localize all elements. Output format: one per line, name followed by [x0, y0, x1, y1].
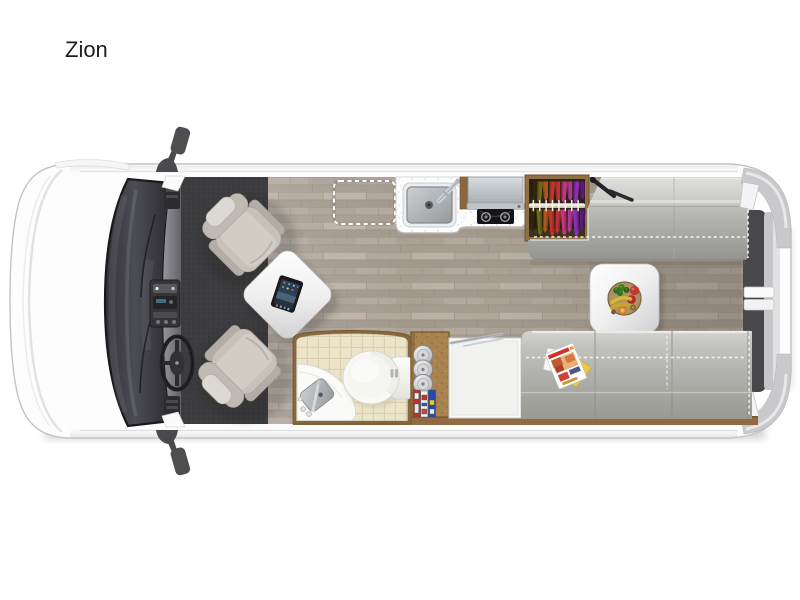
svg-text:Zion: Zion	[65, 37, 108, 62]
